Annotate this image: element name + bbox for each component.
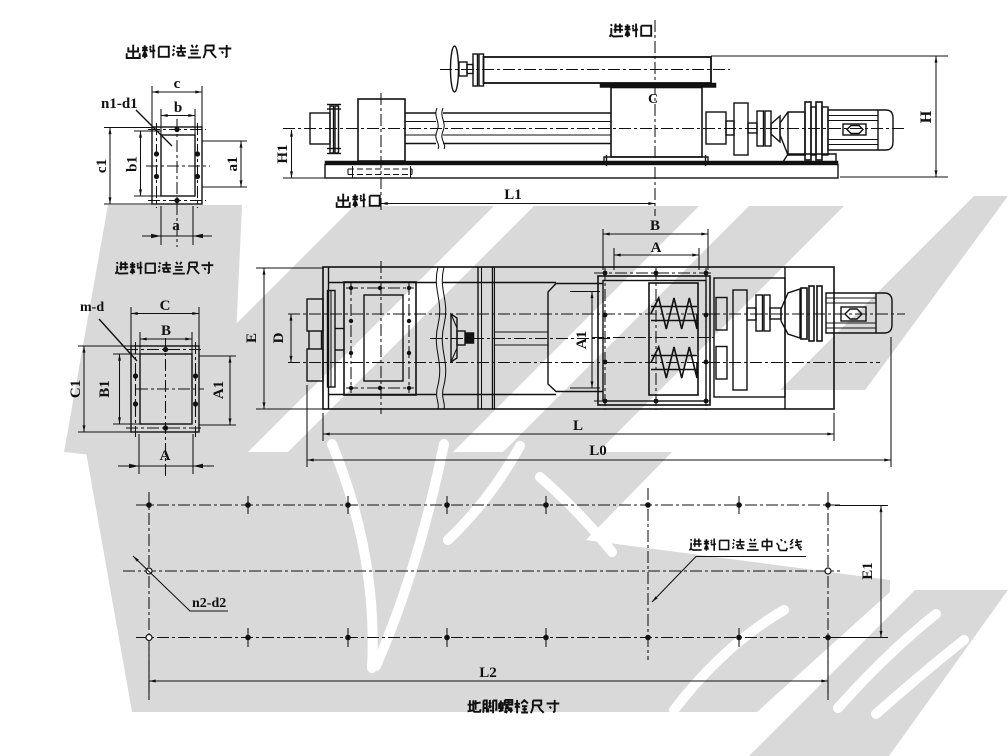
svg-text:C1: C1 — [68, 380, 84, 398]
svg-text:m-d: m-d — [80, 300, 104, 315]
svg-text:L2: L2 — [479, 665, 497, 681]
svg-text:a: a — [172, 218, 180, 234]
svg-text:E: E — [244, 333, 260, 343]
svg-text:b1: b1 — [125, 156, 141, 172]
svg-text:A: A — [651, 240, 662, 256]
svg-text:E1: E1 — [860, 562, 876, 580]
svg-text:c1: c1 — [94, 159, 110, 173]
svg-text:D: D — [271, 332, 287, 343]
svg-text:b: b — [174, 100, 182, 116]
svg-text:H: H — [918, 110, 935, 123]
svg-text:A: A — [160, 448, 171, 464]
svg-text:B: B — [161, 323, 171, 339]
svg-text:L0: L0 — [589, 443, 607, 459]
svg-text:B: B — [650, 218, 660, 234]
svg-text:A1: A1 — [211, 381, 227, 399]
svg-text:a1: a1 — [225, 157, 241, 172]
svg-text:C: C — [160, 298, 171, 314]
svg-text:C: C — [648, 92, 658, 107]
svg-text:A1: A1 — [574, 331, 590, 349]
svg-text:n1-d1: n1-d1 — [101, 96, 138, 112]
svg-text:n2-d2: n2-d2 — [192, 596, 226, 611]
svg-text:H1: H1 — [275, 144, 291, 163]
svg-text:L1: L1 — [504, 187, 522, 203]
svg-text:L: L — [573, 418, 583, 434]
svg-text:B1: B1 — [97, 380, 113, 398]
svg-text:c: c — [174, 76, 181, 92]
